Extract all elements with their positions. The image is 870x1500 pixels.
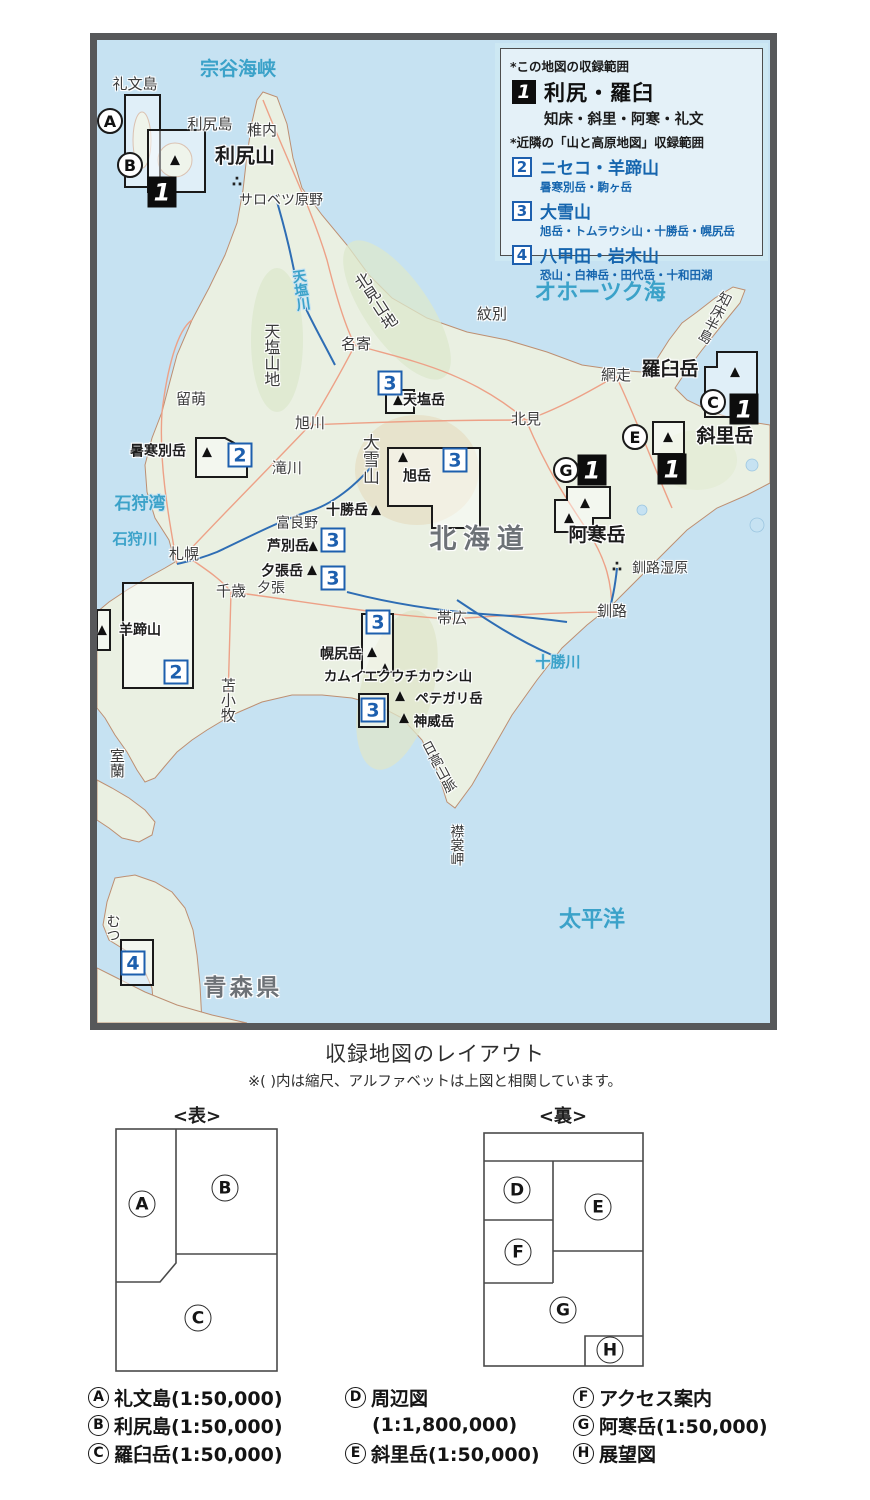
list-letter-E: E bbox=[345, 1443, 366, 1464]
list-letter-A: A bbox=[88, 1387, 109, 1408]
map-label: 名寄 bbox=[341, 337, 371, 353]
list-letter-B: B bbox=[88, 1415, 109, 1436]
legend-box: *この地図の収録範囲 1 利尻・羅臼 知床・斜里・阿寒・礼文 *近隣の「山と高原… bbox=[500, 48, 763, 256]
legend-main-sub: 知床・斜里・阿寒・礼文 bbox=[544, 108, 753, 129]
legend-note-nearby: *近隣の「山と高原地図」収録範囲 bbox=[510, 132, 753, 151]
map-label: 太平洋 bbox=[559, 908, 625, 931]
map-label: 北見山地 bbox=[350, 271, 399, 334]
map-label: 暑寒別岳 bbox=[130, 445, 186, 460]
map-label: サロベツ原野 bbox=[239, 194, 323, 209]
map-label: 釧路湿原 bbox=[632, 562, 688, 577]
map-label: 天塩川 bbox=[290, 268, 310, 312]
diagram-letter-G: G bbox=[550, 1297, 577, 1324]
front-layout-diagram: ABC bbox=[115, 1128, 278, 1372]
legend-badge-3: 3 bbox=[512, 201, 532, 221]
map-label: ペテガリ岳 bbox=[415, 692, 483, 706]
legend-badge-1: 1 bbox=[512, 80, 536, 104]
map-list-item: B利尻島(1:50,000) bbox=[88, 1411, 283, 1439]
map-label: 室蘭 bbox=[108, 748, 124, 778]
map-label: 札幌 bbox=[169, 547, 199, 563]
map-label: 北海道 bbox=[429, 526, 530, 554]
list-letter-G: G bbox=[573, 1415, 594, 1436]
map-list-column-1: A礼文島(1:50,000)B利尻島(1:50,000)C羅臼岳(1:50,00… bbox=[88, 1383, 283, 1467]
hokkaido-map: 1111223333334ABCEG▲▲▲▲▲▲▲▲▲▲▲▲▲▲▲▲∴∴ 宗谷海… bbox=[90, 33, 777, 1030]
map-label: オホーツク海 bbox=[534, 281, 666, 304]
map-list-item: Fアクセス案内 bbox=[573, 1383, 768, 1411]
diagram-letter-D: D bbox=[504, 1177, 531, 1204]
map-label: 旭川 bbox=[295, 416, 325, 432]
list-letter-H: H bbox=[573, 1443, 594, 1464]
map-label: 利尻山 bbox=[215, 146, 275, 167]
diagram-letter-E: E bbox=[585, 1194, 612, 1221]
legend-badge-4: 4 bbox=[512, 245, 532, 265]
map-label: 稚内 bbox=[247, 123, 277, 139]
diagram-letter-A: A bbox=[129, 1191, 156, 1218]
legend-nearby-row: 2ニセコ・羊蹄山 bbox=[512, 154, 753, 179]
map-label: 神威岳 bbox=[414, 715, 455, 729]
list-letter-C: C bbox=[88, 1443, 109, 1464]
map-label: 網走 bbox=[601, 368, 631, 384]
map-label: 襟裳岬 bbox=[449, 824, 464, 866]
map-list-item: A礼文島(1:50,000) bbox=[88, 1383, 283, 1411]
list-item-text: 周辺図 bbox=[371, 1384, 428, 1411]
map-label: 夕張岳 bbox=[261, 565, 303, 580]
layout-section-note: ※( )内は縮尺、アルファベットは上図と相関しています。 bbox=[0, 1070, 870, 1091]
map-label: 礼文島 bbox=[112, 77, 157, 93]
map-label: 羊蹄山 bbox=[119, 624, 161, 639]
map-label: むつ bbox=[105, 914, 120, 942]
layout-section-title: 収録地図のレイアウト bbox=[0, 1038, 870, 1068]
map-list-item: D周辺図 bbox=[345, 1383, 540, 1411]
map-label: 滝川 bbox=[272, 461, 302, 477]
map-label: 斜里岳 bbox=[696, 427, 753, 447]
map-label: 羅臼岳 bbox=[641, 360, 698, 380]
map-list-column-2: D周辺図(1:1,800,000)E斜里岳(1:50,000) bbox=[345, 1383, 540, 1467]
map-label: 利尻島 bbox=[187, 117, 232, 133]
map-label: 知床半島 bbox=[695, 289, 734, 346]
map-label: カムイエクウチカウシ山 bbox=[324, 670, 472, 684]
map-label: 芦別岳 bbox=[267, 540, 309, 555]
map-label: 天塩岳 bbox=[403, 394, 445, 409]
map-label: 大雪山 bbox=[359, 434, 377, 485]
map-label: 釧路 bbox=[597, 604, 627, 620]
diagram-letter-B: B bbox=[212, 1175, 239, 1202]
front-diagram-label: <表> bbox=[173, 1102, 221, 1128]
map-list-column-3: Fアクセス案内G阿寒岳(1:50,000)H展望図 bbox=[573, 1383, 768, 1467]
map-list-item: H展望図 bbox=[573, 1439, 768, 1467]
list-item-text: 斜里岳(1:50,000) bbox=[371, 1440, 540, 1467]
list-item-text: 展望図 bbox=[599, 1440, 656, 1467]
map-label: 十勝岳 bbox=[326, 504, 368, 519]
list-item-text: (1:1,800,000) bbox=[372, 1414, 517, 1436]
list-item-text: アクセス案内 bbox=[599, 1384, 712, 1411]
diagram-letter-F: F bbox=[505, 1239, 532, 1266]
legend-nearby-sub: 旭岳・トムラウシ山・十勝岳・幌尻岳 bbox=[540, 223, 753, 239]
back-diagram-label: <裏> bbox=[539, 1102, 587, 1128]
map-label: 天塩山地 bbox=[262, 323, 279, 387]
legend-badge-2: 2 bbox=[512, 157, 532, 177]
map-label: 日高山脈 bbox=[418, 739, 457, 795]
legend-nearby-sub: 暑寒別岳・駒ヶ岳 bbox=[540, 179, 753, 195]
map-label: 千歳 bbox=[216, 584, 246, 600]
legend-note-this: *この地図の収録範囲 bbox=[510, 56, 753, 75]
map-label: 十勝川 bbox=[535, 655, 580, 671]
list-item-text: 利尻島(1:50,000) bbox=[114, 1412, 283, 1439]
map-label: 石狩湾 bbox=[115, 496, 166, 514]
list-item-text: 羅臼岳(1:50,000) bbox=[114, 1440, 283, 1467]
map-list-item: (1:1,800,000) bbox=[345, 1411, 540, 1439]
legend-nearby-title: ニセコ・羊蹄山 bbox=[540, 154, 659, 179]
list-item-text: 礼文島(1:50,000) bbox=[114, 1384, 283, 1411]
map-label: 幌尻岳 bbox=[320, 648, 362, 663]
map-label: 苫小牧 bbox=[219, 678, 235, 723]
map-label: 富良野 bbox=[276, 517, 318, 532]
map-label: 夕張 bbox=[257, 582, 285, 597]
map-label: 旭岳 bbox=[403, 470, 431, 485]
legend-nearby-row: 4八甲田・岩木山 bbox=[512, 242, 753, 267]
map-list-item: C羅臼岳(1:50,000) bbox=[88, 1439, 283, 1467]
diagram-letter-H: H bbox=[597, 1337, 624, 1364]
map-label: 紋別 bbox=[477, 307, 507, 323]
map-list-item: G阿寒岳(1:50,000) bbox=[573, 1411, 768, 1439]
map-list-item: E斜里岳(1:50,000) bbox=[345, 1439, 540, 1467]
page: { "colors":{"ocean":"#c6e2f2","land":"#e… bbox=[0, 0, 870, 1500]
map-label: 宗谷海峡 bbox=[200, 60, 276, 80]
legend-nearby-title: 八甲田・岩木山 bbox=[540, 242, 659, 267]
front-diagram-svg bbox=[115, 1128, 278, 1372]
map-label: 帯広 bbox=[437, 611, 467, 627]
map-label: 北見 bbox=[511, 412, 541, 428]
back-layout-diagram: DEFGH bbox=[483, 1132, 644, 1367]
list-letter-F: F bbox=[573, 1387, 594, 1408]
legend-nearby-title: 大雪山 bbox=[540, 198, 591, 223]
legend-nearby-sub: 恐山・白神岳・田代岳・十和田湖 bbox=[540, 267, 753, 283]
legend-main-title: 利尻・羅臼 bbox=[544, 77, 654, 107]
legend-nearby-row: 3大雪山 bbox=[512, 198, 753, 223]
list-item-text: 阿寒岳(1:50,000) bbox=[599, 1412, 768, 1439]
map-label: 青森県 bbox=[203, 976, 282, 1000]
map-label: 石狩川 bbox=[112, 532, 157, 548]
diagram-letter-C: C bbox=[185, 1305, 212, 1332]
list-letter-D: D bbox=[345, 1387, 366, 1408]
legend-nearby-list: 2ニセコ・羊蹄山暑寒別岳・駒ヶ岳3大雪山旭岳・トムラウシ山・十勝岳・幌尻岳4八甲… bbox=[510, 154, 753, 283]
map-label: 阿寒岳 bbox=[568, 526, 625, 546]
map-label: 留萌 bbox=[176, 392, 206, 408]
